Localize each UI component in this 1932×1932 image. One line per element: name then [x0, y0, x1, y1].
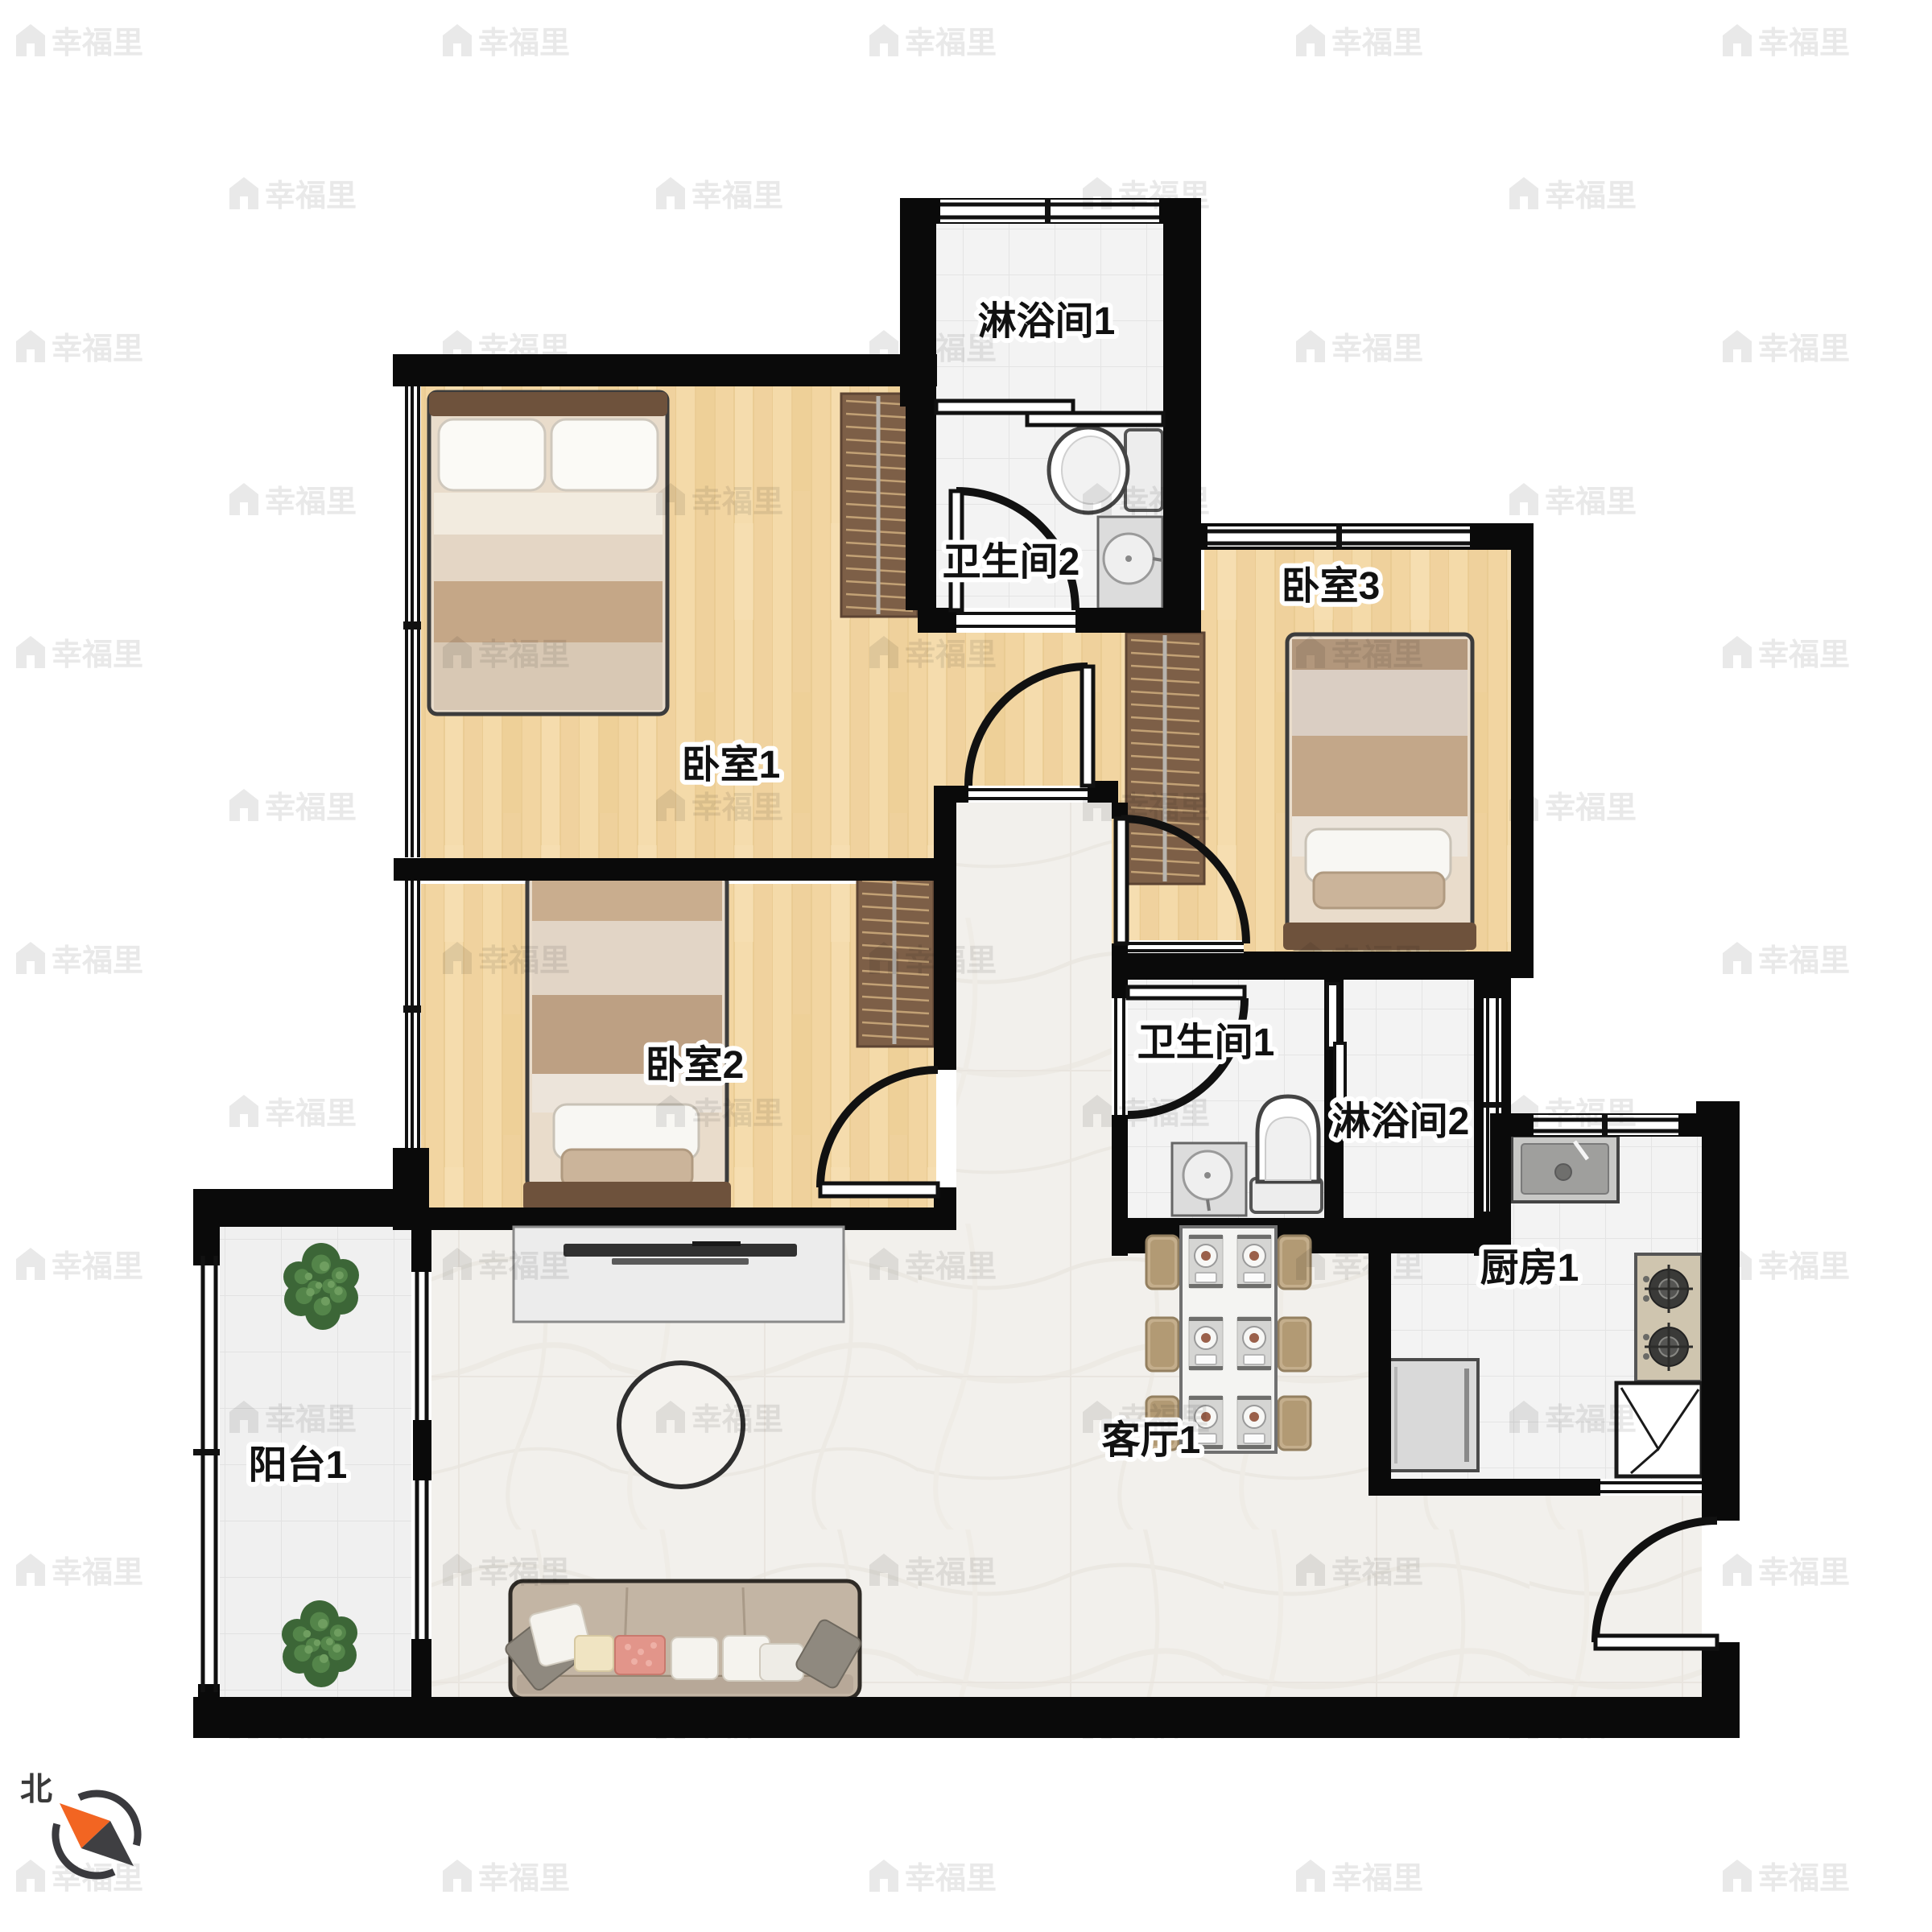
svg-text:北: 北	[20, 1772, 52, 1807]
